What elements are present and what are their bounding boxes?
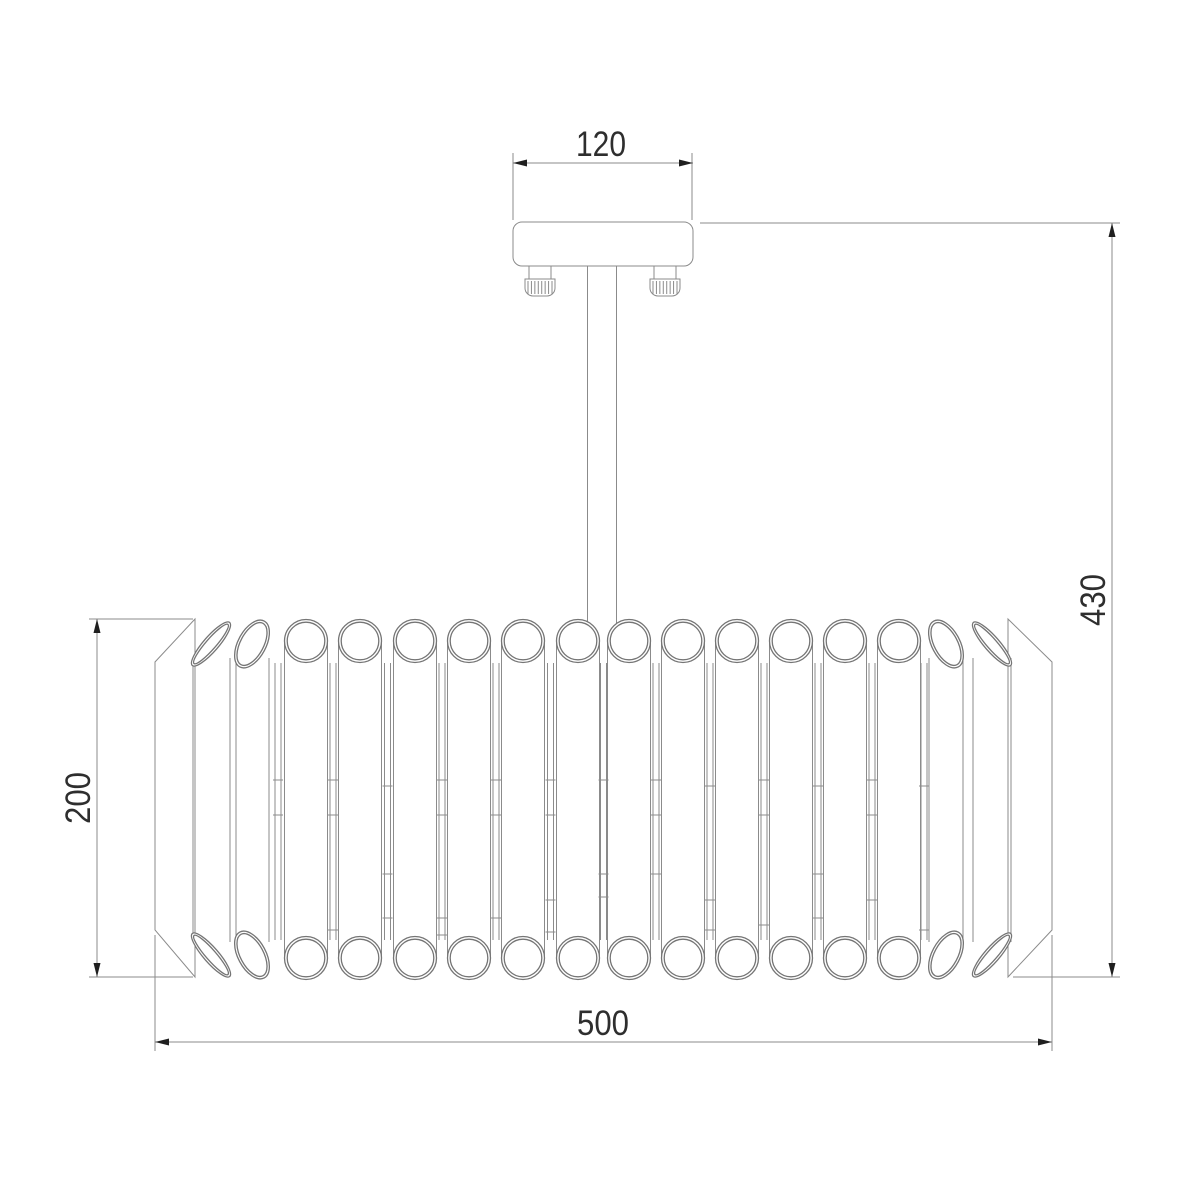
tube-end-ring-outer bbox=[824, 620, 867, 663]
tube-end-ring-outer bbox=[339, 937, 382, 980]
dimension-label-overall-height: 430 bbox=[1074, 574, 1113, 626]
tube-end-ring-outer bbox=[608, 937, 651, 980]
tube-end-ring-outer bbox=[285, 620, 328, 663]
side-panel-left bbox=[155, 619, 195, 977]
screw-knurled-cap bbox=[650, 279, 680, 296]
ceiling-plate-body bbox=[513, 222, 693, 266]
technical-drawing: 120 430 200 500 bbox=[0, 0, 1200, 1200]
tube-end-ring-outer bbox=[557, 937, 600, 980]
tube-end-ring-outer bbox=[662, 620, 705, 663]
screw-knurled-cap bbox=[525, 279, 555, 296]
rear-tube-strips bbox=[273, 663, 929, 940]
tube-end-ring-outer bbox=[608, 620, 651, 663]
tube-end-ring-outer bbox=[824, 937, 867, 980]
tube-end-ring-outer bbox=[502, 620, 545, 663]
tube-end-ring-outer bbox=[394, 937, 437, 980]
tube-end-ring-outer bbox=[878, 937, 921, 980]
tube-end-ring-outer bbox=[662, 937, 705, 980]
tube-end-ring-outer bbox=[716, 937, 759, 980]
side-panel-right bbox=[1008, 619, 1052, 977]
ceiling-plate bbox=[513, 222, 693, 266]
drawing-canvas: 120 430 200 500 bbox=[0, 0, 1200, 1200]
tube-end-ring-outer bbox=[285, 937, 328, 980]
tube-end-ring-outer bbox=[394, 620, 437, 663]
dimension-label-shade-diameter: 500 bbox=[577, 1004, 629, 1043]
tube-end-ring-outer bbox=[339, 620, 382, 663]
tube-end-ring-outer bbox=[448, 620, 491, 663]
mounting-screw-left bbox=[525, 266, 555, 296]
tube-end-ring-outer bbox=[716, 620, 759, 663]
tube-end-ring-outer bbox=[557, 620, 600, 663]
mounting-screw-right bbox=[650, 266, 680, 296]
dimension-label-shade-height: 200 bbox=[59, 772, 98, 824]
screw-neck bbox=[529, 266, 551, 279]
tube-end-ring-outer bbox=[448, 937, 491, 980]
tube-end-ring-outer bbox=[770, 937, 813, 980]
dimension-plate-width: 120 bbox=[513, 125, 693, 220]
tube-end-rings bbox=[187, 614, 1017, 984]
dimension-label-plate-width: 120 bbox=[576, 125, 626, 164]
screw-neck bbox=[654, 266, 676, 279]
tube-end-ring-outer bbox=[770, 620, 813, 663]
tube-side-lines bbox=[193, 641, 1011, 958]
suspension-rod bbox=[588, 266, 617, 623]
dimension-overall-height: 430 bbox=[700, 223, 1120, 977]
tube-end-ring-outer bbox=[878, 620, 921, 663]
shade-side-panels bbox=[155, 619, 1052, 977]
tube-end-ring-outer bbox=[502, 937, 545, 980]
